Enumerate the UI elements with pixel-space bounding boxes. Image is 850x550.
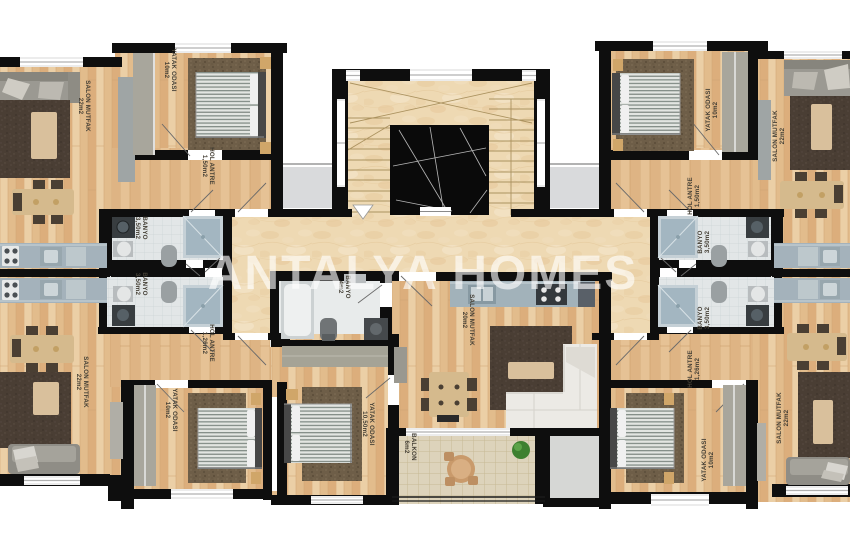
svg-text:3,50m2: 3,50m2 <box>704 307 711 330</box>
svg-text:22m2: 22m2 <box>77 98 84 115</box>
svg-text:1,26m2: 1,26m2 <box>694 358 701 381</box>
svg-text:BANYO: BANYO <box>141 272 148 295</box>
svg-text:22m2: 22m2 <box>779 127 786 144</box>
svg-text:10,50m2: 10,50m2 <box>361 411 368 437</box>
svg-text:HOL ANTRE: HOL ANTRE <box>208 324 215 362</box>
svg-text:BALKON: BALKON <box>410 433 417 461</box>
svg-text:BANYO: BANYO <box>141 216 148 239</box>
svg-text:3,50m2: 3,50m2 <box>134 273 141 296</box>
svg-text:10m2: 10m2 <box>163 62 170 79</box>
svg-text:10m2: 10m2 <box>164 402 171 419</box>
svg-text:10m2: 10m2 <box>708 451 715 468</box>
svg-text:22m2: 22m2 <box>783 409 790 426</box>
svg-text:SALON MUTFAK: SALON MUTFAK <box>468 294 475 346</box>
svg-text:HOL ANTRE: HOL ANTRE <box>687 177 694 215</box>
svg-text:BANYO: BANYO <box>697 230 704 253</box>
svg-text:HOL ANTRE: HOL ANTRE <box>208 147 215 185</box>
svg-text:1,50m2: 1,50m2 <box>201 155 208 178</box>
svg-text:10m2: 10m2 <box>712 101 719 118</box>
svg-text:6m2: 6m2 <box>403 441 410 454</box>
svg-text:SALON MUTFAK: SALON MUTFAK <box>772 110 779 162</box>
svg-text:ANTALYA HOMES: ANTALYA HOMES <box>208 247 639 300</box>
svg-text:SALON MUTFAK: SALON MUTFAK <box>776 392 783 444</box>
svg-text:YATAK ODASI: YATAK ODASI <box>171 388 178 431</box>
svg-text:YATAK ODASI: YATAK ODASI <box>170 48 177 91</box>
svg-text:BANYO: BANYO <box>697 306 704 329</box>
svg-text:HOL ANTRE: HOL ANTRE <box>687 350 694 388</box>
svg-text:3,50m2: 3,50m2 <box>704 231 711 254</box>
svg-text:SALON MUTFAK: SALON MUTFAK <box>82 356 89 408</box>
svg-text:SALON MUTFAK: SALON MUTFAK <box>84 80 91 132</box>
svg-text:3,50m2: 3,50m2 <box>134 217 141 240</box>
svg-text:20m2: 20m2 <box>461 312 468 329</box>
svg-text:YATAK ODASI: YATAK ODASI <box>368 402 375 445</box>
svg-text:22m2: 22m2 <box>75 374 82 391</box>
svg-text:YATAK ODASI: YATAK ODASI <box>701 438 708 481</box>
svg-text:YATAK ODASI: YATAK ODASI <box>705 88 712 131</box>
svg-text:1,50m2: 1,50m2 <box>694 185 701 208</box>
svg-text:1,26m2: 1,26m2 <box>201 332 208 355</box>
